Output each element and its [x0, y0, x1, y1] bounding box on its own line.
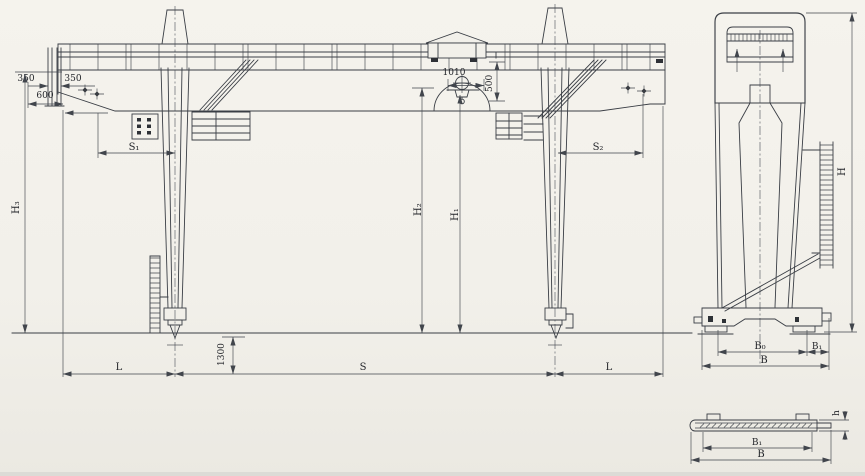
end-brace: [722, 254, 820, 311]
elevation-view: 350 350 600 H₃ S₁ S₂ 1010 5: [11, 4, 692, 377]
dim-label-s2: S₂: [593, 142, 604, 153]
end-sill: [694, 254, 831, 334]
datum-marker: [621, 83, 635, 94]
crane-drawing-canvas: 350 350 600 H₃ S₁ S₂ 1010 5: [0, 0, 865, 476]
dim-h3: H₃: [11, 74, 25, 333]
end-frame: [715, 13, 805, 365]
dim-label-h3: H₃: [11, 201, 22, 214]
dim-label-b1-section: B₁: [752, 438, 762, 448]
dim-label-b-section: B: [757, 449, 764, 460]
left-leg-ladder: [150, 256, 168, 333]
right-junction-box: [496, 113, 543, 140]
section-view: B₁ B h: [690, 410, 849, 464]
gantry-crane-drawing-page: 350 350 600 H₃ S₁ S₂ 1010 5: [0, 0, 865, 476]
dim-label-350-left: 350: [17, 74, 34, 84]
dim-label-l-left: L: [116, 362, 123, 373]
dim-label-h2: H₂: [413, 203, 424, 216]
hook: [460, 99, 465, 104]
end-ladder: [803, 142, 833, 268]
dim-350-600: 350 350 600: [15, 72, 108, 113]
dim-label-350-right: 350: [64, 74, 81, 84]
hook-assembly: [434, 74, 490, 111]
dim-label-500: 500: [485, 75, 495, 92]
dim-label-h-section: h: [832, 410, 842, 416]
dim-label-h1: H₁: [450, 208, 461, 221]
dim-label-s1: S₁: [129, 142, 140, 153]
dim-label-1300: 1300: [217, 343, 227, 366]
dim-s2: S₂: [558, 94, 643, 158]
dim-label-l-right: L: [606, 362, 613, 373]
dim-section-group: B₁ B h: [691, 410, 849, 464]
girder-end-buffer: [656, 59, 663, 63]
dim-label-1010: 1010: [443, 68, 466, 78]
left-leg: [132, 6, 258, 377]
scan-edge-artifact: [0, 472, 865, 476]
dim-label-h-end: H: [837, 167, 848, 176]
left-junction-box: [132, 114, 158, 139]
dim-label-b1-end: B₁: [812, 342, 822, 352]
end-view: H B₀ B₁ B: [694, 13, 857, 370]
right-leg: [496, 4, 606, 377]
datum-marker: [90, 89, 104, 100]
dim-1300: 1300: [217, 337, 245, 374]
left-stair: [200, 60, 258, 110]
dim-500: 500: [485, 62, 505, 101]
dim-h2: H₂: [412, 88, 434, 333]
dim-h1: H₁: [450, 95, 461, 333]
dim-h-end: H: [806, 13, 857, 332]
datum-marker: [637, 86, 651, 97]
left-steps: [192, 112, 250, 140]
section-beam: [690, 414, 831, 431]
dim-label-600: 600: [36, 91, 53, 101]
dim-label-b-end: B: [760, 355, 767, 366]
dim-span-chain: L S L: [63, 106, 663, 377]
dim-label-span: S: [360, 362, 367, 373]
bridge-girder: [45, 44, 665, 111]
dim-label-b0: B₀: [754, 341, 765, 352]
trolley: [426, 32, 496, 62]
